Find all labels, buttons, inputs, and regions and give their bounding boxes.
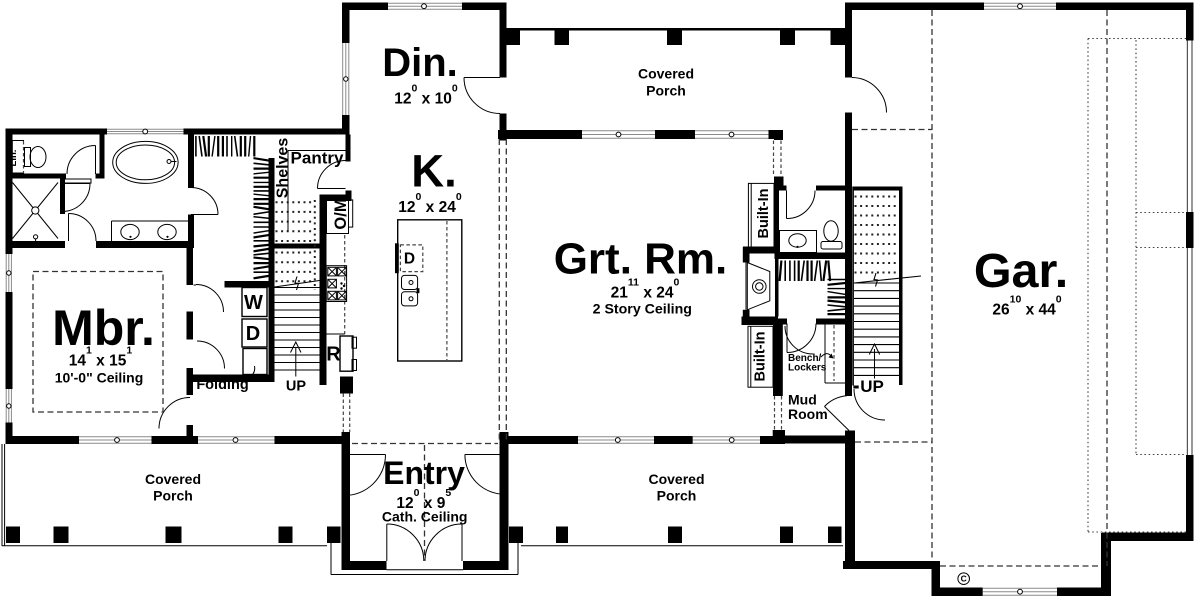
svg-text:Grt. Rm.: Grt. Rm. <box>554 235 728 284</box>
svg-text:D: D <box>404 251 415 268</box>
svg-text:Din.: Din. <box>382 41 458 85</box>
svg-text:Pantry: Pantry <box>291 149 344 168</box>
svg-text:Entry: Entry <box>383 455 465 491</box>
svg-text:Covered: Covered <box>145 471 201 487</box>
svg-text:C: C <box>961 574 967 584</box>
svg-text:UP: UP <box>286 379 306 395</box>
svg-text:R: R <box>326 344 341 366</box>
svg-text:Built-In: Built-In <box>753 332 769 382</box>
svg-text:Shelves: Shelves <box>275 138 292 199</box>
svg-text:10'-0" Ceiling: 10'-0" Ceiling <box>55 370 144 386</box>
svg-text:UP: UP <box>860 377 884 396</box>
svg-text:Built-In: Built-In <box>756 189 772 239</box>
svg-text:Cath. Ceiling: Cath. Ceiling <box>382 509 468 525</box>
svg-text:Folding: Folding <box>196 377 248 393</box>
svg-text:Room: Room <box>788 406 828 422</box>
svg-text:K.: K. <box>411 146 457 197</box>
svg-text:2 Story Ceiling: 2 Story Ceiling <box>593 302 692 318</box>
svg-text:Covered: Covered <box>638 66 694 82</box>
svg-text:Porch: Porch <box>153 488 193 504</box>
svg-text:Covered: Covered <box>648 471 704 487</box>
svg-text:O/M: O/M <box>332 198 350 229</box>
svg-text:Lockers: Lockers <box>788 363 827 374</box>
svg-text:Porch: Porch <box>657 488 697 504</box>
svg-text:Porch: Porch <box>646 83 686 99</box>
svg-text:Mbr.: Mbr. <box>52 300 155 356</box>
svg-text:W: W <box>244 292 263 314</box>
svg-text:Lin.: Lin. <box>8 150 19 167</box>
svg-text:D: D <box>246 323 260 345</box>
svg-text:Gar.: Gar. <box>974 244 1068 298</box>
